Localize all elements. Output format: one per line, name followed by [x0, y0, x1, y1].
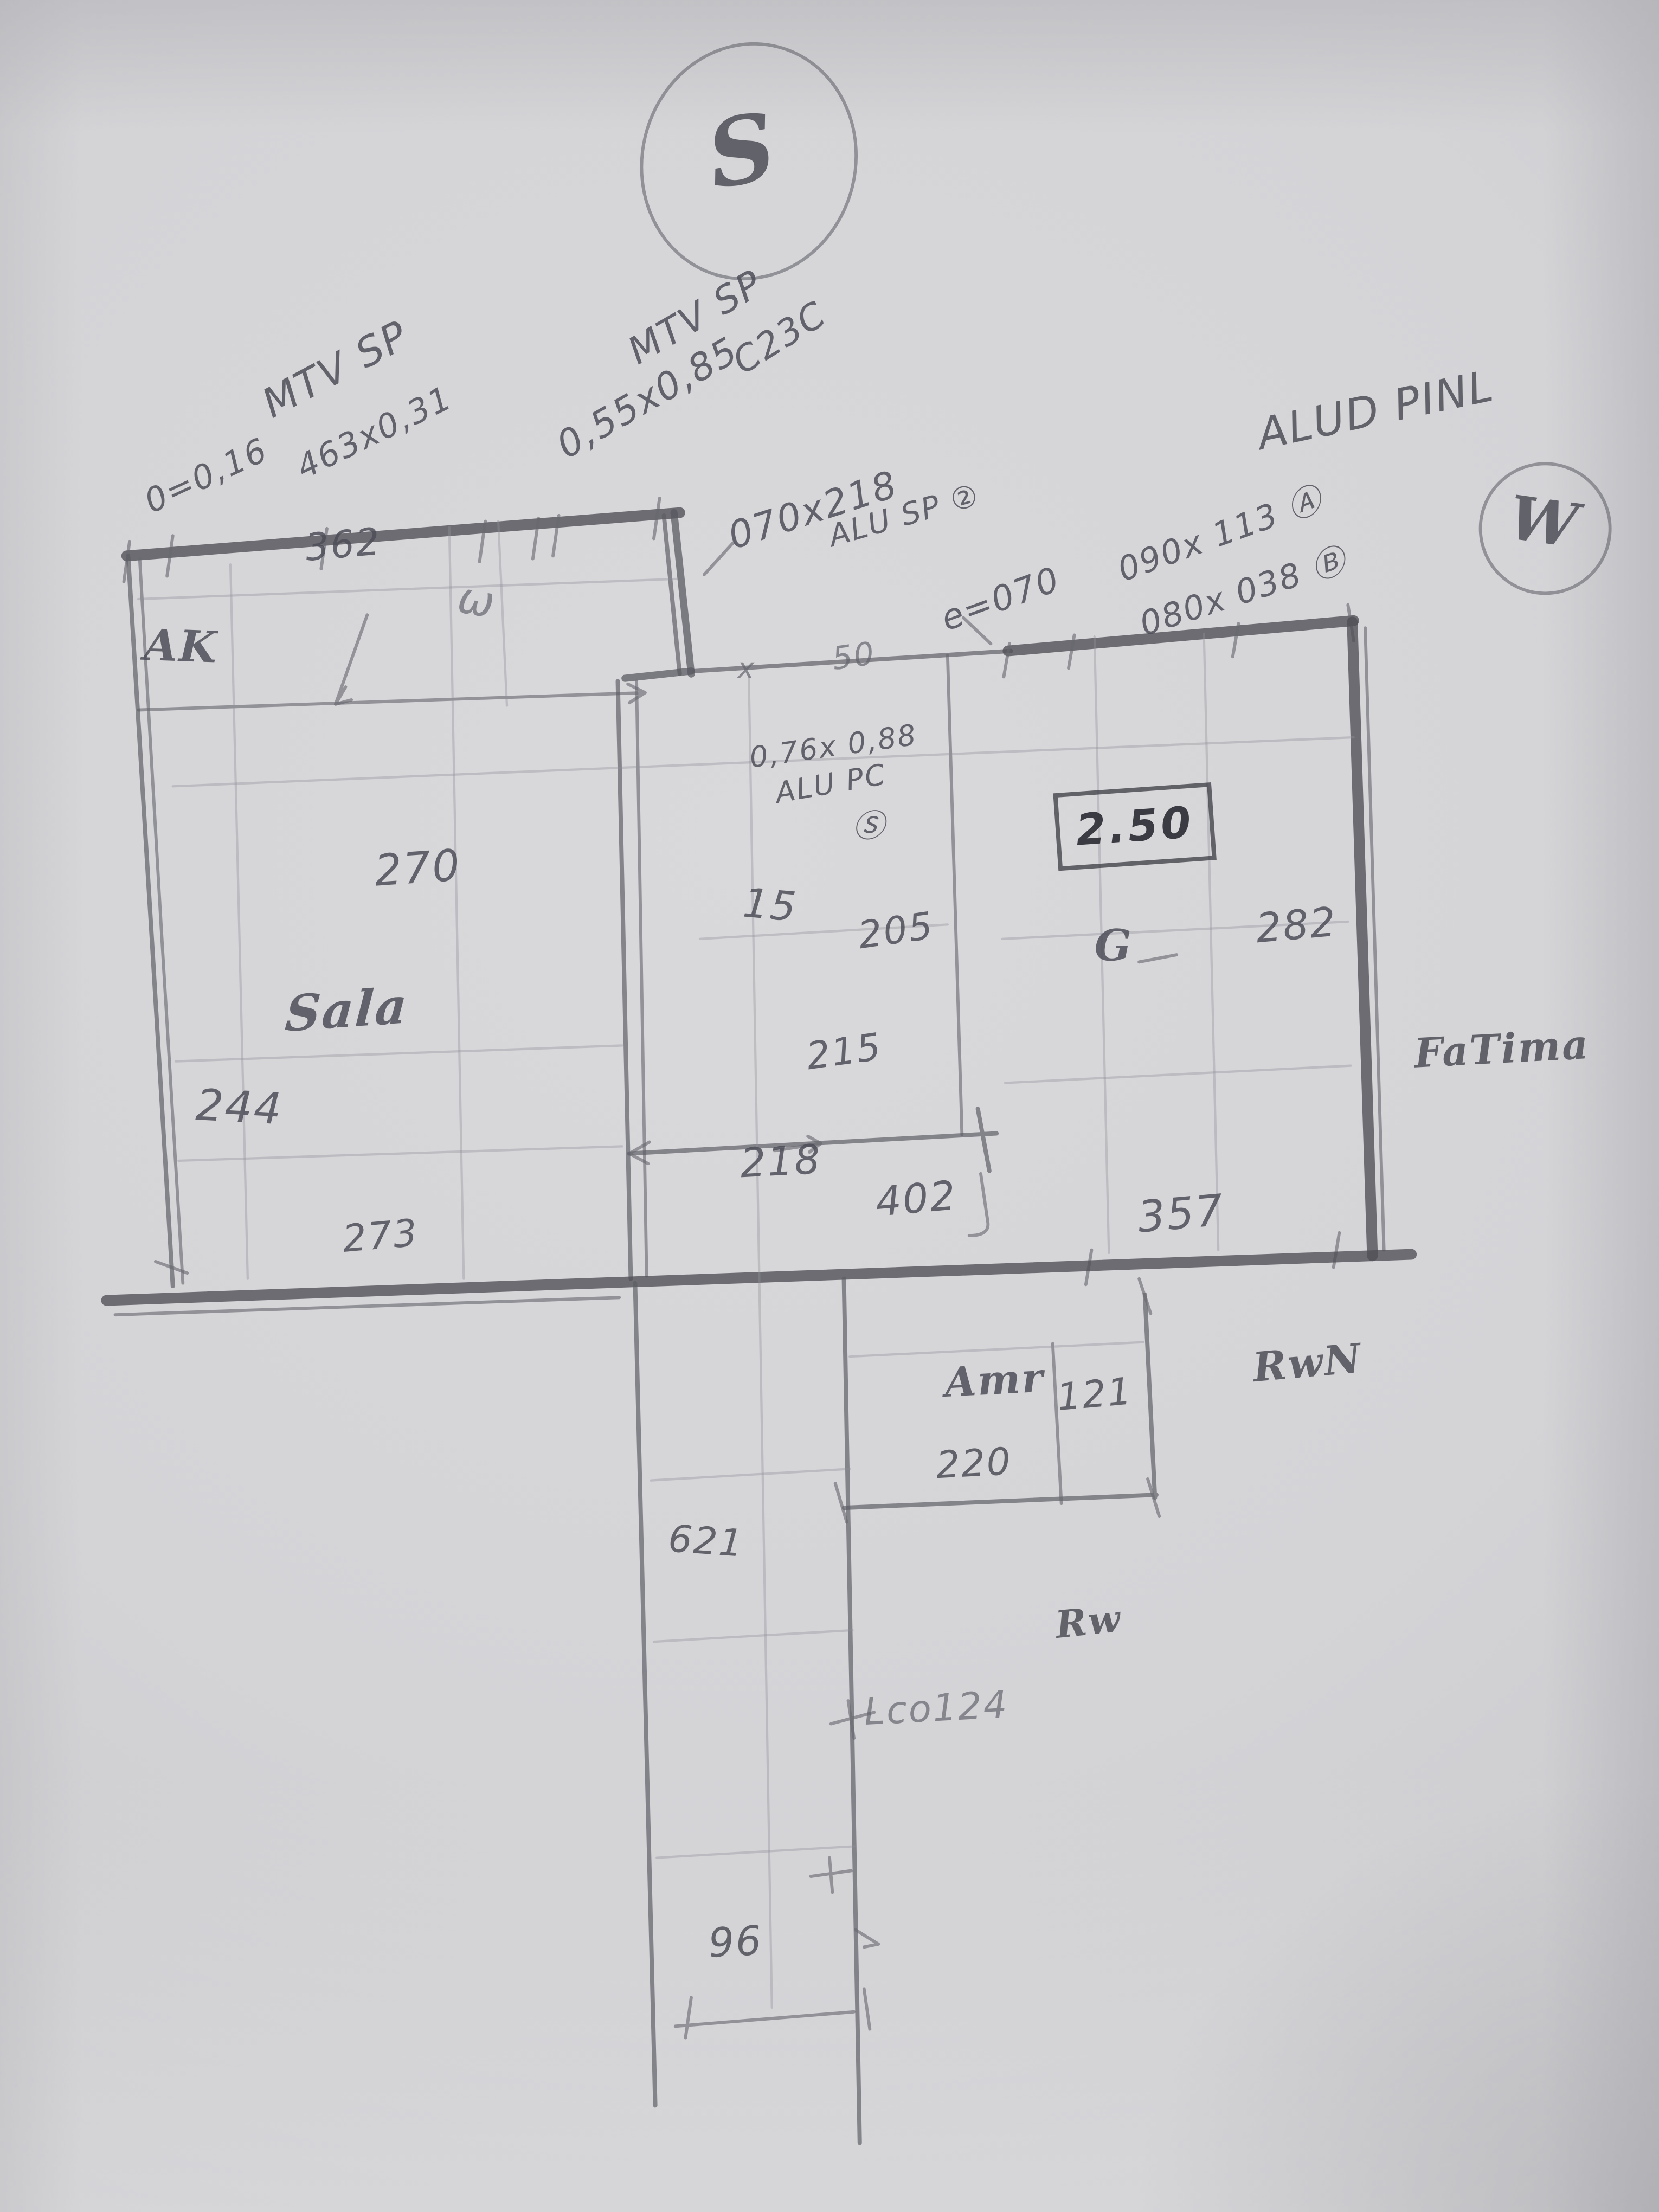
dimension-273: 273 [341, 1212, 420, 1262]
dimension-362: 362 [304, 521, 383, 571]
room-label-rwan: RwN [1251, 1335, 1365, 1392]
mark-g: G [1095, 922, 1133, 972]
wall-mark-50: 50 [830, 636, 878, 678]
dimension-270: 270 [373, 841, 463, 897]
room-label-ak: AK [143, 621, 219, 674]
dimension-621: 621 [667, 1518, 745, 1566]
boxed-dimension-250-value: 2.50 [1074, 798, 1195, 856]
dimension-15: 15 [741, 879, 799, 931]
note-lco124: Lco124 [863, 1684, 1009, 1735]
dimension-402: 402 [873, 1172, 959, 1226]
annotation-window3-mark: Ⓢ [853, 801, 886, 847]
dimension-282: 282 [1254, 898, 1339, 952]
dimension-244: 244 [195, 1081, 284, 1135]
dimension-96: 96 [708, 1917, 764, 1967]
dimension-220: 220 [935, 1441, 1013, 1488]
photographed-paper: S W MTV SP 0=0,16 463x0,31 MTV SP C23C 0… [0, 0, 1659, 2212]
room-label-sala: Sala [283, 978, 410, 1044]
dimension-357: 357 [1136, 1186, 1227, 1244]
floor-plan-sketch: S W MTV SP 0=0,16 463x0,31 MTV SP C23C 0… [0, 0, 1659, 2212]
boxed-dimension-250: 2.50 [1053, 782, 1216, 871]
room-label-fatima: FaTima [1413, 1021, 1591, 1077]
dimension-218: 218 [739, 1136, 822, 1187]
wall-mark-x: x [737, 651, 756, 686]
dimension-121: 121 [1055, 1371, 1134, 1420]
room-label-rw: Rw [1053, 1598, 1124, 1648]
compass-west: W [1504, 483, 1583, 562]
room-label-amr: Amr [943, 1354, 1045, 1406]
